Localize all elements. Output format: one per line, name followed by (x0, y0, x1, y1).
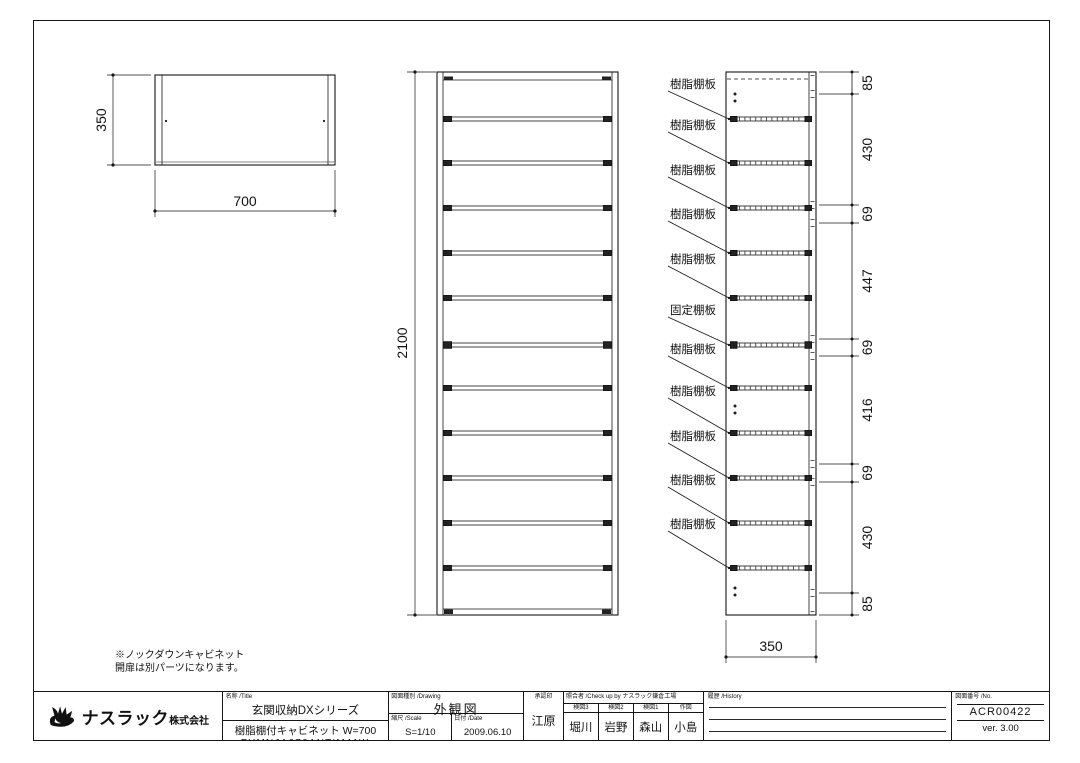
width-dimension: 700 (233, 193, 257, 209)
divider (957, 720, 1044, 721)
company-logo-swan-icon (47, 704, 75, 729)
checker-role: 検図1 (634, 704, 668, 713)
resin-shelf-label: 樹脂棚板 (670, 384, 716, 398)
company-cell: ナスラック株式会社 (34, 692, 223, 740)
checker-column: 検図2 岩野 (599, 704, 634, 740)
approver-name: 江原 (524, 701, 563, 740)
cad-views: 350 700 2100 (0, 0, 1080, 763)
shelf-pin-hole (734, 594, 736, 596)
side-shelves (731, 117, 812, 571)
depth-dimension: 350 (93, 108, 109, 132)
shelf-pin-hole (734, 100, 736, 102)
hinge-hole (323, 120, 325, 122)
scale-value: S=1/10 (389, 724, 451, 740)
front-fixed-shelf (444, 342, 612, 349)
drawing-type-cell: 図面種別 /Drawing 外観図 縮尺 /Scale S=1/10 日付 /D… (389, 692, 524, 740)
side-shelf (731, 296, 812, 301)
drawing-type: 外観図 (389, 699, 523, 718)
height-segment-dimension: 69 (859, 206, 875, 222)
height-dimension: 2100 (394, 327, 410, 358)
height-segment-dimension: 69 (859, 340, 875, 356)
hinge-hole (165, 120, 167, 122)
resin-shelf-label: 樹脂棚板 (670, 207, 716, 221)
top-rail-end (602, 77, 611, 81)
top-view (155, 75, 335, 165)
knockdown-note: ※ノックダウンキャビネット 開扉は別パーツになります。 (115, 650, 244, 675)
front-shelf (444, 431, 612, 436)
shelf-pin-hole (734, 587, 736, 589)
height-segment-dimension: 430 (859, 138, 875, 162)
resin-shelf-label: 樹脂棚板 (670, 77, 716, 91)
resin-shelf-label: 樹脂棚板 (670, 429, 716, 443)
front-shelves (444, 117, 612, 571)
note-line-2: 開扉は別パーツになります。 (115, 663, 244, 676)
side-shelf (731, 251, 812, 256)
checker-role: 検図3 (564, 704, 598, 713)
shelf-pin-hole (734, 93, 736, 95)
height-segment-dimension: 447 (859, 269, 875, 293)
base-foot (444, 610, 453, 615)
company-suffix: 株式会社 (169, 716, 209, 727)
checker-column: 検図1 森山 (634, 704, 669, 740)
product-title: 樹脂棚付キャビネット W=700 (223, 723, 389, 738)
resin-shelf-label: 樹脂棚板 (670, 163, 716, 177)
checker-name: 岩野 (599, 713, 633, 740)
approval-cell: 承認印 江原 (524, 692, 564, 740)
divider (957, 704, 1044, 705)
approval-label: 承認印 (524, 692, 563, 701)
side-shelf (731, 117, 812, 122)
history-line (709, 708, 947, 720)
shelf-pin-hole (734, 405, 736, 407)
drawing-sheet: 350 700 2100 (0, 0, 1080, 763)
resin-shelf-label: 樹脂棚板 (670, 342, 716, 356)
side-shelf (731, 566, 812, 571)
resin-shelf-label: 樹脂棚板 (670, 473, 716, 487)
resin-shelf-label: 樹脂棚板 (670, 252, 716, 266)
top-rail-end (444, 77, 453, 81)
front-shelf (444, 296, 612, 301)
check-label: 照合者 /Check up by ナスラック鎌倉工場 (564, 692, 703, 704)
front-view (437, 72, 618, 615)
side-shelf (731, 386, 812, 391)
side-shelf (731, 521, 812, 526)
check-cell: 照合者 /Check up by ナスラック鎌倉工場 検図3 堀川 検図2 岩野… (564, 692, 704, 740)
side-view-width-dimension: 350 (724, 620, 817, 663)
title-label: 名称 /Title (223, 692, 389, 702)
height-segment-dimension: 85 (859, 75, 875, 91)
height-segment-dimension: 85 (859, 596, 875, 612)
history-line (709, 720, 947, 732)
height-segment-dimension: 69 (859, 465, 875, 481)
checker-name: 堀川 (564, 713, 598, 740)
shelf-pin-hole (734, 412, 736, 414)
front-view-dimensions: 2100 (394, 70, 436, 616)
front-shelf (444, 117, 612, 122)
front-shelf (444, 161, 612, 166)
drawing-type-label: 図面種別 /Drawing (391, 693, 440, 701)
side-shelf (731, 431, 812, 436)
base-foot (602, 610, 611, 615)
checker-name: 森山 (634, 713, 668, 740)
side-shelf (731, 476, 812, 481)
note-line-1: ※ノックダウンキャビネット (115, 650, 244, 663)
front-shelf (444, 476, 612, 481)
product-code: FUMNJA070ANTIMANK (223, 738, 389, 740)
top-view-dimensions: 350 700 (93, 73, 337, 217)
fixed-shelf-label: 固定棚板 (670, 303, 716, 317)
company-name: ナスラック (82, 709, 170, 728)
history-cell: 履歴 /History (704, 692, 953, 740)
side-view (726, 72, 816, 615)
side-width-dimension: 350 (759, 638, 783, 654)
resin-shelf-label: 樹脂棚板 (670, 118, 716, 132)
front-shelf (444, 251, 612, 256)
drawing-version: ver. 3.00 (952, 723, 1049, 734)
shelf-callouts: 樹脂棚板樹脂棚板樹脂棚板樹脂棚板樹脂棚板固定棚板樹脂棚板樹脂棚板樹脂棚板樹脂棚板… (668, 77, 730, 569)
drawing-number-cell: 図面番号 /No. ACR00422 ver. 3.00 (952, 692, 1049, 740)
side-view-height-dimensions: 8543069447694166943085 (819, 71, 875, 617)
side-shelf (731, 161, 812, 166)
title-block: ナスラック株式会社 名称 /Title 玄関収納DXシリーズ 樹脂棚付キャビネッ… (33, 691, 1050, 741)
front-shelf (444, 521, 612, 526)
checker-role: 検図2 (599, 704, 633, 713)
front-shelf (444, 206, 612, 211)
history-label: 履歴 /History (704, 692, 952, 702)
height-segment-dimension: 416 (859, 398, 875, 422)
side-fixed-shelf (731, 342, 812, 349)
front-shelf (444, 566, 612, 571)
date-value: 2009.06.10 (452, 724, 523, 740)
title-cell: 名称 /Title 玄関収納DXシリーズ 樹脂棚付キャビネット W=700 FU… (223, 692, 390, 740)
height-segment-dimension: 430 (859, 526, 875, 550)
checker-column: 検図3 堀川 (564, 704, 599, 740)
drawing-number-label: 図面番号 /No. (952, 692, 1049, 702)
checker-name: 小島 (669, 713, 703, 740)
series-title: 玄関収納DXシリーズ (223, 702, 389, 721)
front-shelf (444, 386, 612, 391)
resin-shelf-label: 樹脂棚板 (670, 517, 716, 531)
drawing-number: ACR00422 (952, 706, 1049, 718)
checker-role: 作図 (669, 704, 703, 713)
side-shelf (731, 206, 812, 211)
checker-column: 作図 小島 (669, 704, 703, 740)
